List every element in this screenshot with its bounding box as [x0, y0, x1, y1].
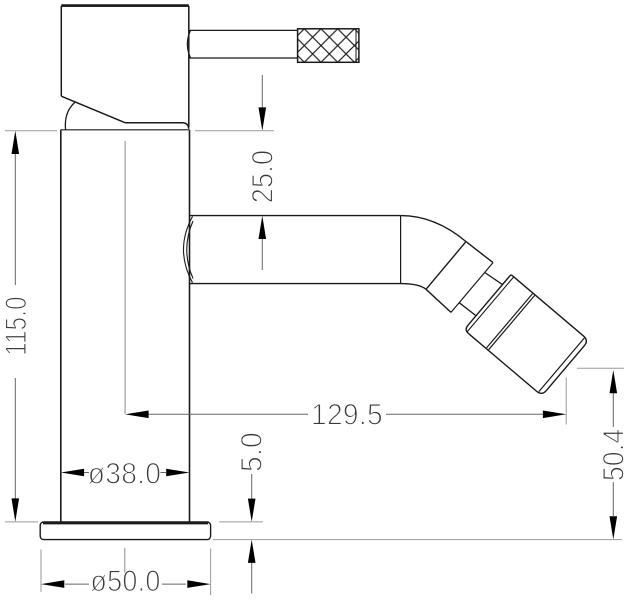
svg-text:129.5: 129.5: [311, 399, 383, 432]
svg-text:115.0: 115.0: [0, 296, 33, 355]
svg-text:ø50.0: ø50.0: [90, 565, 160, 599]
svg-text:50.4: 50.4: [596, 429, 626, 481]
svg-text:5.0: 5.0: [236, 432, 269, 472]
svg-text:25.0: 25.0: [246, 150, 280, 204]
svg-text:ø38.0: ø38.0: [88, 458, 162, 491]
